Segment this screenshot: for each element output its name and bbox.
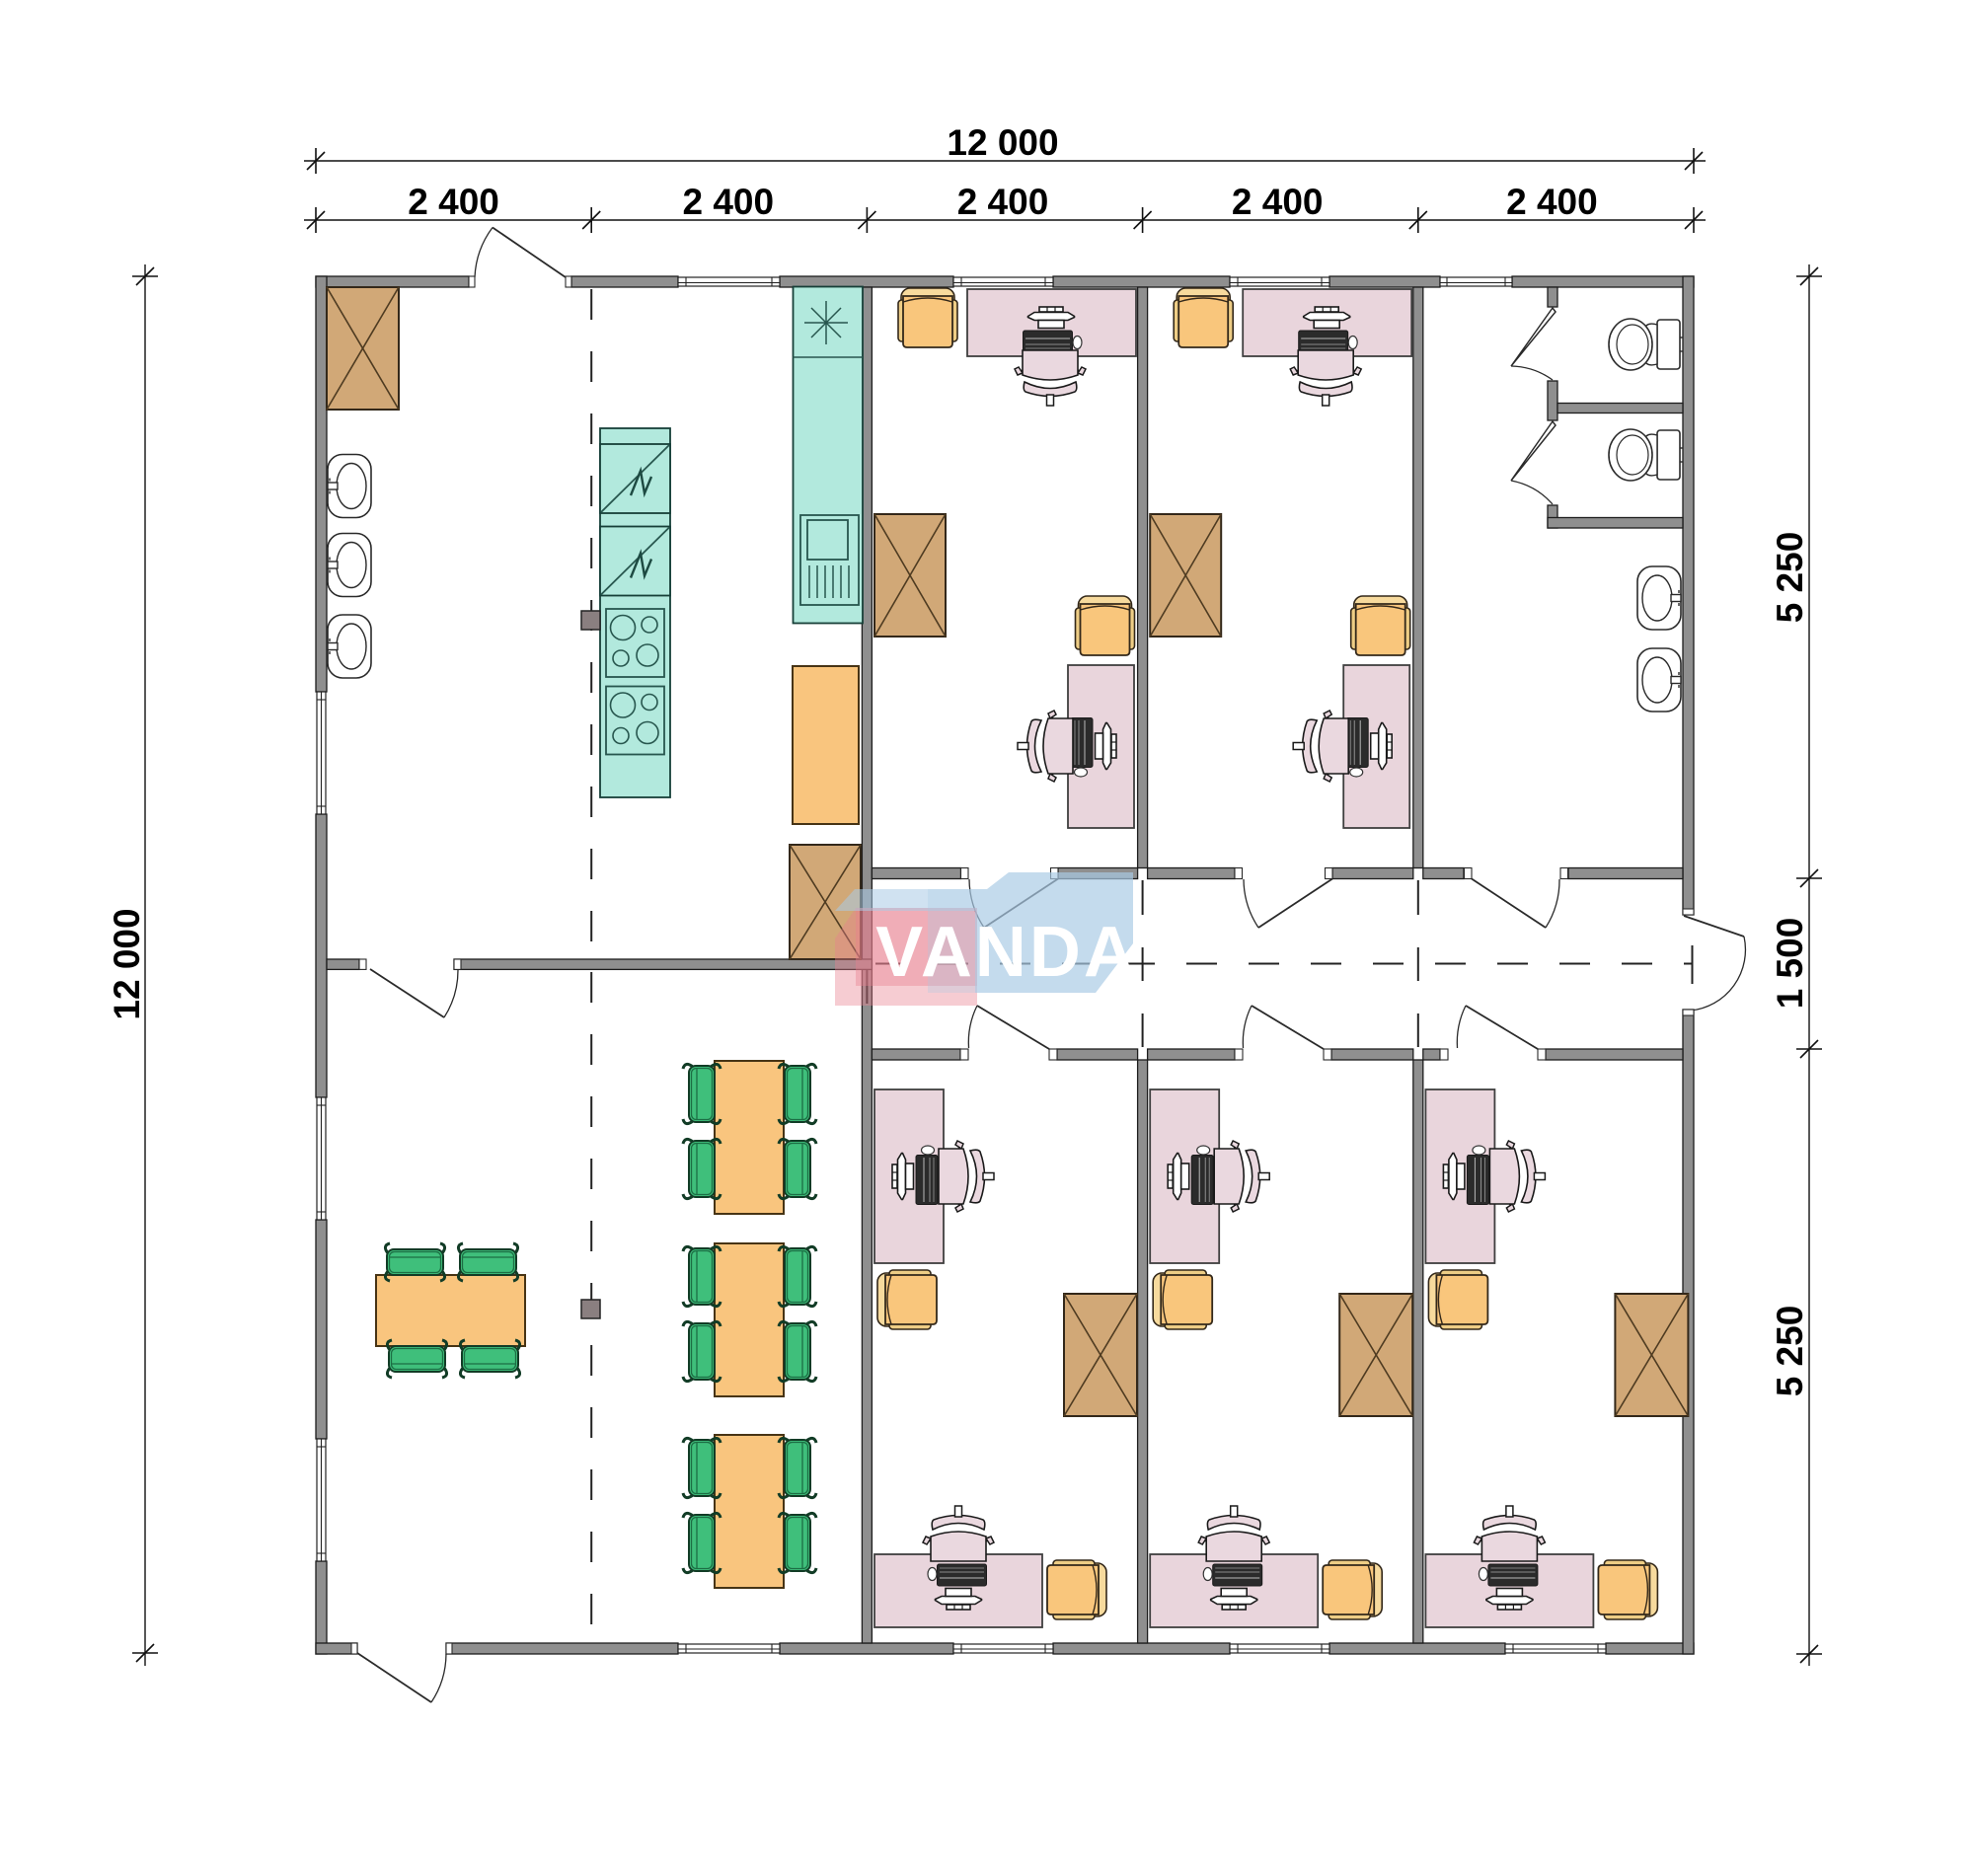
svg-text:2 400: 2 400 [683, 182, 775, 222]
svg-text:5 250: 5 250 [1770, 1306, 1810, 1397]
svg-text:2 400: 2 400 [957, 182, 1049, 222]
svg-text:2 400: 2 400 [1506, 182, 1598, 222]
svg-text:5 250: 5 250 [1770, 532, 1810, 624]
svg-text:1 500: 1 500 [1770, 918, 1810, 1010]
svg-text:12 000: 12 000 [947, 122, 1058, 163]
svg-text:2 400: 2 400 [1232, 182, 1324, 222]
svg-text:2 400: 2 400 [408, 182, 499, 222]
svg-text:VANDA: VANDA [875, 913, 1138, 992]
svg-text:12 000: 12 000 [107, 908, 147, 1019]
